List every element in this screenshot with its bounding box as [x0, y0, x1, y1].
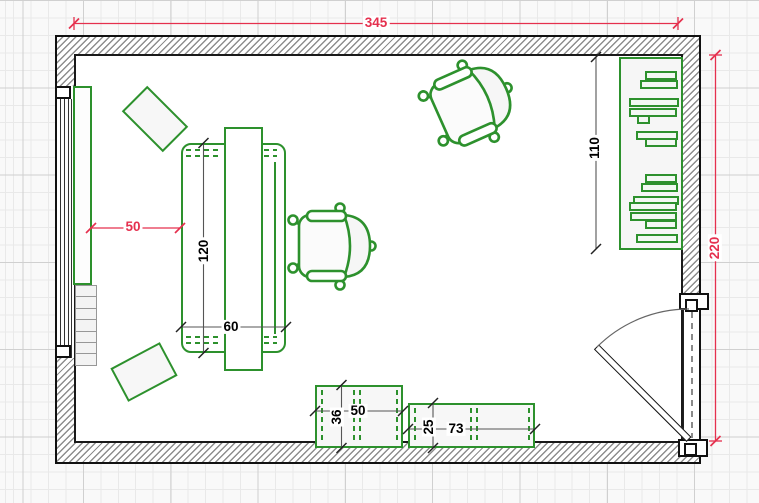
box-fold-line — [414, 408, 416, 443]
dim-label-box-b-width[interactable]: 73 — [446, 422, 465, 436]
door-closed-dashed-line — [691, 312, 693, 438]
dim-label-desk-length[interactable]: 120 — [197, 238, 211, 265]
floor-plan-canvas[interactable]: 345 220 50 110 120 60 36 50 25 73 — [0, 0, 759, 503]
desk-drawer-mark — [264, 149, 277, 151]
book — [645, 174, 677, 183]
book — [629, 98, 679, 107]
book — [641, 183, 678, 192]
desk-return-board[interactable] — [224, 127, 263, 371]
box-fold-line — [470, 408, 472, 443]
window-pane-line — [64, 99, 65, 358]
book — [637, 115, 650, 124]
dim-label-box-a-width[interactable]: 50 — [348, 404, 367, 418]
box-fold-line — [396, 390, 398, 443]
dim-label-room-width[interactable]: 345 — [363, 16, 390, 30]
bookshelf[interactable] — [619, 57, 683, 250]
dim-label-box-b-depth[interactable]: 25 — [422, 417, 436, 436]
window[interactable] — [55, 86, 74, 358]
window-frame-post-bottom — [55, 345, 71, 358]
chair-armrest — [307, 271, 346, 281]
desk-drawer-mark — [186, 149, 222, 151]
desk-edge-line — [274, 162, 276, 334]
door-jamb-bottom-notch — [684, 443, 697, 456]
dim-label-shelf-span[interactable]: 110 — [588, 135, 602, 161]
box-fold-line — [528, 408, 530, 443]
book — [645, 138, 677, 147]
book — [645, 71, 677, 80]
radiator[interactable] — [75, 285, 97, 366]
desk-drawer-mark — [186, 155, 222, 157]
wall-shelf[interactable] — [73, 86, 92, 285]
window-pane-line — [60, 99, 61, 358]
desk-drawer-mark — [264, 155, 277, 157]
caster-wheel — [417, 90, 429, 102]
book — [640, 80, 678, 89]
dim-label-wall-to-desk[interactable]: 50 — [123, 220, 142, 234]
door-opening[interactable] — [683, 310, 701, 440]
desk-drawer-mark — [186, 342, 222, 344]
caster-wheel — [289, 216, 298, 225]
book — [636, 234, 678, 243]
book — [645, 220, 677, 229]
door-jamb-top-notch — [685, 299, 698, 312]
window-frame-post-top — [55, 86, 71, 99]
window-pane-line — [68, 99, 69, 358]
dim-label-room-depth[interactable]: 220 — [708, 235, 722, 262]
book — [629, 202, 677, 211]
chair-seat — [299, 215, 352, 277]
box-fold-line — [321, 390, 323, 443]
desk-drawer-mark — [264, 336, 277, 338]
window-pane-line — [71, 99, 72, 358]
dim-label-box-a-depth[interactable]: 36 — [330, 407, 344, 426]
box-fold-line — [476, 408, 478, 443]
caster-wheel — [289, 264, 298, 273]
desk-drawer-mark — [186, 336, 222, 338]
radiator-section — [75, 353, 97, 366]
office-chair-desk[interactable] — [286, 201, 378, 293]
chair-armrest — [307, 211, 346, 221]
dim-label-desk-width[interactable]: 60 — [221, 320, 240, 334]
desk-drawer-mark — [264, 342, 277, 344]
